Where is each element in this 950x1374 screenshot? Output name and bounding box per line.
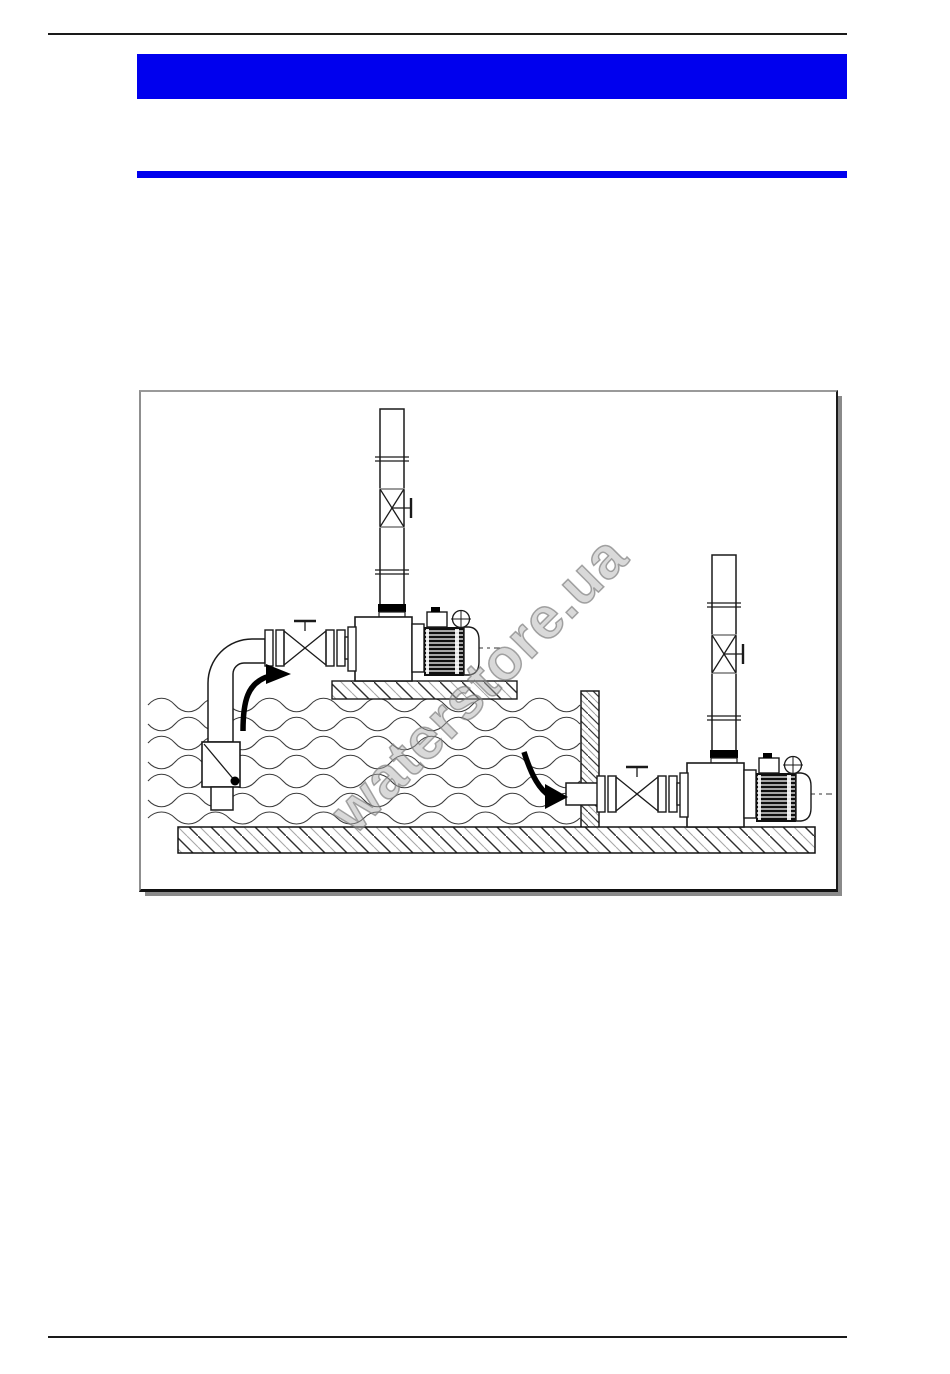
motor xyxy=(412,607,479,676)
document-page: waterstore.ua xyxy=(0,0,950,1374)
foot-valve-strainer xyxy=(211,787,233,810)
section-divider-bar xyxy=(137,171,847,178)
pump-ledge xyxy=(332,681,517,699)
bottom-horizontal-rule xyxy=(48,1336,847,1338)
pump-suction-flange xyxy=(348,627,356,671)
pump-installation-diagram xyxy=(141,392,836,889)
pump-casing xyxy=(355,617,412,681)
pump-unit xyxy=(348,409,500,681)
motor-terminal-box xyxy=(427,612,447,627)
tank-wall xyxy=(581,691,599,828)
floor-slab xyxy=(178,827,815,853)
right-suction-line xyxy=(597,767,687,812)
right-pump-unit xyxy=(680,555,832,827)
discharge-connection xyxy=(378,604,406,612)
motor-end-cap xyxy=(464,627,479,675)
title-banner xyxy=(137,54,847,99)
figure-frame: waterstore.ua xyxy=(139,390,838,892)
suction-line-valve-group xyxy=(265,621,355,666)
flow-arrow-right xyxy=(524,752,568,809)
flow-arrow-left xyxy=(243,664,291,731)
foot-valve-clack xyxy=(231,777,240,786)
suction-elbow-pipe xyxy=(208,639,265,742)
gate-valve-icon xyxy=(284,621,326,665)
foot-valve xyxy=(202,742,240,810)
top-horizontal-rule xyxy=(48,33,847,35)
